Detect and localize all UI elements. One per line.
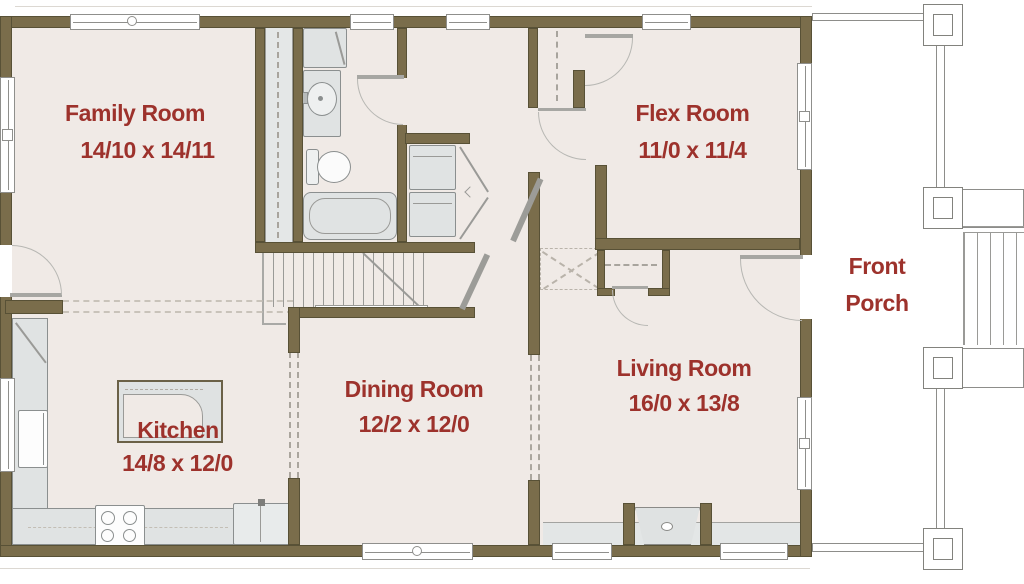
bathtub-icon [303,192,397,240]
wall [595,238,800,250]
room-dims-dining: 12/2 x 12/0 [330,412,498,437]
staircase [263,253,430,307]
porch-column [923,187,963,229]
closet-door-leaf [612,286,648,289]
porch-railing [936,387,945,530]
room-label-flex: Flex Room [610,101,775,126]
room-label-kitchen: Kitchen [123,418,233,443]
room-dims-family: 14/10 x 14/11 [35,138,260,163]
window-mullion [2,129,13,141]
wall [597,250,605,292]
family-room-name: Family Room [65,100,205,126]
room-label-porch-1: Front [828,254,926,279]
window [552,543,612,560]
window [720,543,788,560]
room-label-dining: Dining Room [330,377,498,402]
wall [648,288,670,296]
room-dims-living: 16/0 x 13/8 [600,391,768,416]
washer-icon [409,145,456,190]
wall [662,250,670,292]
sink-drain-icon [318,96,323,101]
porch-column [923,528,963,570]
closet-door-leaf [538,108,586,111]
closet-rod [605,264,657,266]
side-door-opening [0,245,12,297]
porch-railing [936,45,945,189]
wall [528,28,538,108]
living-room-name: Living Room [617,355,752,381]
dryer-icon [409,192,456,237]
wall [293,28,303,242]
room-label-porch-2: Porch [828,291,926,316]
living-room-dims: 16/0 x 13/8 [629,390,740,416]
roof-eave-line [15,6,812,7]
porch-step-edge [963,226,1024,233]
wall [405,133,470,144]
window [350,14,394,30]
family-room-dims: 14/10 x 14/11 [80,137,214,163]
porch-railing [812,543,925,552]
cased-opening-dashes [530,355,540,480]
flex-room-name: Flex Room [636,100,750,126]
wall [288,307,475,318]
porch-railing [812,13,925,21]
room-dims-flex: 11/0 x 11/4 [605,138,780,163]
closet-chase [265,28,293,242]
dishwasher-icon [233,503,292,545]
window [446,14,490,30]
toilet-bowl-icon [317,151,351,183]
cased-opening-dashes [289,352,299,478]
window [642,14,691,30]
wall [595,165,607,242]
room-label-living: Living Room [600,356,768,381]
dining-room-dims: 12/2 x 12/0 [359,411,470,437]
porch-steps [963,233,1024,345]
fireplace-damper [661,522,673,531]
refrigerator-icon [18,410,48,468]
kitchen-name: Kitchen [137,417,219,443]
window-mullion [799,111,810,122]
beam-dashes [63,300,293,313]
wall [5,300,63,314]
stair-handrail [262,253,264,325]
room-dims-kitchen: 14/8 x 12/0 [95,451,260,476]
floor-plan: Family Room 14/10 x 14/11 Flex Room 11/0… [0,0,1024,584]
stair-handrail [262,323,286,325]
window-mullion [412,546,422,556]
flex-room-dims: 11/0 x 11/4 [638,137,746,163]
fireplace-jamb [700,503,712,545]
closet-rod [556,31,558,101]
room-label-family: Family Room [35,101,235,126]
roof-eave-line [0,568,810,569]
wall [288,307,300,353]
wall [288,478,300,545]
kitchen-dims: 14/8 x 12/0 [122,450,233,476]
fireplace-jamb [623,503,635,545]
front-porch-line1: Front [849,253,906,279]
wall [255,28,265,242]
porch-step-landing [961,348,1024,388]
window-mullion [799,438,810,449]
wall [528,480,540,545]
window-mullion [127,16,137,26]
window [0,378,15,472]
wall [573,70,585,108]
dining-room-name: Dining Room [345,376,484,402]
porch-column [923,4,963,46]
wall [255,242,475,253]
porch-column [923,347,963,389]
stove-icon [95,505,145,547]
dishwasher-knob [258,499,265,506]
porch-step-landing [961,189,1024,228]
closet-rod [277,32,279,238]
front-porch-line2: Porch [845,290,908,316]
